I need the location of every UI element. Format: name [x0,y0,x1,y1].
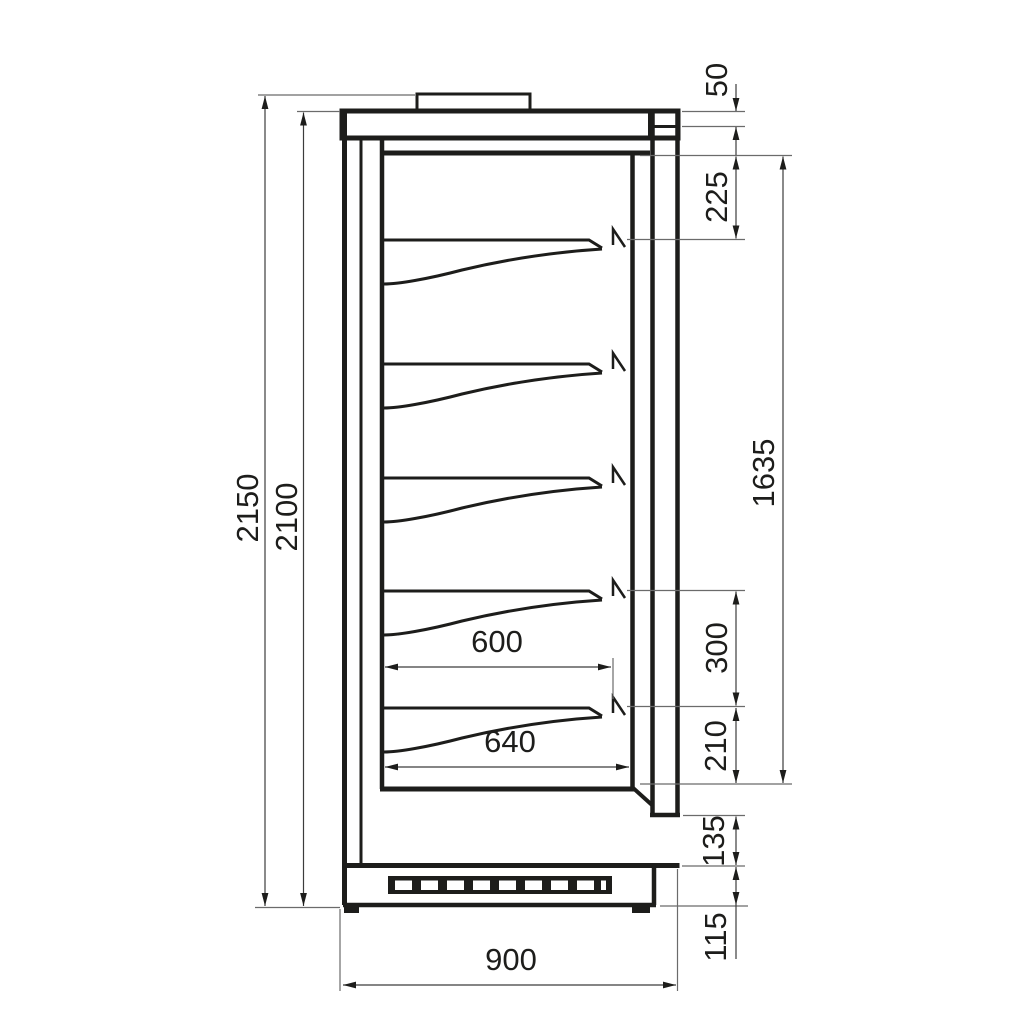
dim-label-210: 210 [698,720,733,772]
dimension-interior-height: 1635 [746,157,783,784]
price-rail-icon [613,229,625,247]
shelf-2 [384,353,625,408]
top-box [417,94,530,111]
shelf-3 [384,467,625,522]
dimension-body-height: 2100 [269,113,304,907]
dim-label-900: 900 [485,942,537,977]
dimension-bottom-shelf-to-deck: 210 [698,708,736,783]
technical-drawing: 2150 2100 50 225 1635 300 210 [0,0,1024,1024]
dim-label-2150: 2150 [230,474,265,543]
dim-label-2100: 2100 [269,483,304,552]
canopy [342,111,678,138]
dim-label-600: 600 [471,624,523,659]
dimension-bottom-shelf-depth: 640 [385,724,629,767]
dimension-canopy-top: 50 [699,63,736,155]
dim-label-225: 225 [699,171,734,223]
dim-label-115: 115 [698,912,733,961]
foot-right [632,905,650,913]
price-rail-icon [613,580,625,598]
dimensions: 2150 2100 50 225 1635 300 210 [230,63,783,985]
ventilation-grille [388,876,612,894]
drawing-canvas: 2150 2100 50 225 1635 300 210 [0,0,1024,1024]
dimension-shelf-spacing: 300 [699,592,736,706]
shelves [384,229,625,752]
price-rail-icon [613,467,625,485]
foot-left [344,905,359,913]
dimension-overall-height: 2150 [230,96,265,906]
dimension-lower-front-panel: 135 [696,815,736,867]
dim-label-1635: 1635 [746,439,781,508]
dim-label-50: 50 [699,63,734,97]
deck-front-diagonal [632,787,652,805]
cabinet-structure [342,94,680,913]
dim-label-640: 640 [484,724,536,759]
dim-label-135: 135 [696,815,731,867]
shelf-1 [384,229,625,284]
dim-label-300: 300 [699,622,734,674]
price-rail-icon [613,697,625,715]
dimension-top-to-first-shelf: 225 [699,157,736,239]
price-rail-icon [613,353,625,371]
dimension-plinth-height: 115 [698,867,736,962]
dimension-overall-depth: 900 [343,942,676,985]
